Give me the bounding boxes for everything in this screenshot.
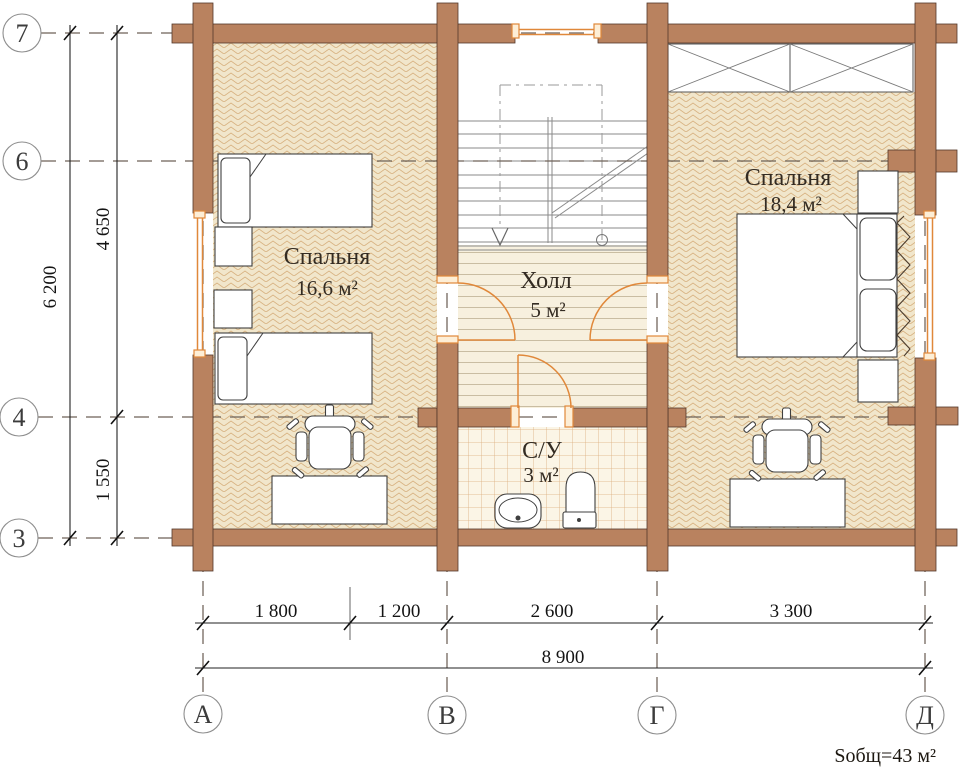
- axis-label-g: Г: [649, 701, 664, 730]
- axis-label-7: 7: [16, 19, 29, 48]
- total-area-note: Sобщ=43 м²: [834, 745, 936, 767]
- axis-label-b: В: [438, 701, 455, 730]
- room-label-hall: Холл: [520, 268, 571, 294]
- room-area-bedroom-right: 18,4 м²: [760, 192, 822, 216]
- single-bed-icon: [215, 333, 372, 404]
- room-label-bedroom-right: Спальня: [745, 165, 832, 191]
- dim-total-width: 8 900: [542, 647, 585, 668]
- single-bed-icon: [218, 154, 372, 227]
- dim-segment-b1-b: 1 200: [378, 601, 421, 622]
- nightstand-icon: [214, 290, 252, 328]
- room-label-bedroom-left: Спальня: [284, 244, 371, 270]
- desk-icon: [272, 476, 387, 524]
- dim-total-height: 6 200: [40, 266, 61, 309]
- dim-segment-a-b1: 1 800: [255, 601, 298, 622]
- axis-label-3: 3: [13, 524, 26, 553]
- room-label-bathroom: С/У: [522, 438, 562, 464]
- desk-icon: [730, 479, 845, 527]
- dim-segment-b-g: 2 600: [531, 601, 574, 622]
- floor-plan-page: Спальня 16,6 м² Холл 5 м² С/У 3 м² Спаль…: [0, 0, 959, 768]
- double-bed-icon: [737, 214, 897, 357]
- wardrobe-icon: [668, 44, 913, 92]
- nightstand-icon: [858, 171, 898, 213]
- axis-label-4: 4: [13, 403, 26, 432]
- sink-icon: [495, 494, 541, 528]
- axis-label-d: Д: [916, 701, 934, 730]
- room-area-bathroom: 3 м²: [523, 463, 558, 487]
- dim-segment-7-4: 4 650: [93, 208, 114, 251]
- nightstand-icon: [858, 360, 898, 402]
- window-right-icon: [924, 211, 935, 360]
- dim-segment-g-d: 3 300: [770, 601, 813, 622]
- room-area-bedroom-left: 16,6 м²: [296, 276, 358, 300]
- nightstand-icon: [215, 227, 252, 266]
- window-top-icon: [512, 24, 601, 38]
- floor-plan-drawing: Спальня 16,6 м² Холл 5 м² С/У 3 м² Спаль…: [0, 0, 959, 768]
- axis-label-6: 6: [16, 147, 29, 176]
- dim-segment-4-3: 1 550: [93, 459, 114, 502]
- toilet-icon: [563, 472, 596, 528]
- axis-label-a: А: [194, 700, 213, 729]
- room-area-hall: 5 м²: [530, 298, 565, 322]
